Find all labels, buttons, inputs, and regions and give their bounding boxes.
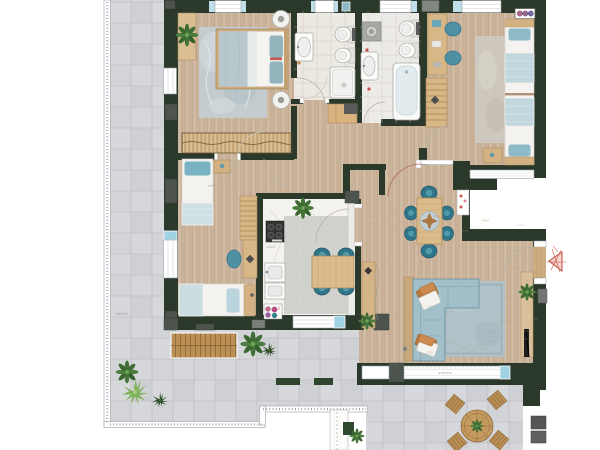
svg-text:ANTINTRUS.: ANTINTRUS.: [438, 372, 453, 375]
svg-text:d 12 x 0: d 12 x 0: [116, 312, 128, 316]
svg-text:7x24x60: 7x24x60: [266, 246, 276, 249]
